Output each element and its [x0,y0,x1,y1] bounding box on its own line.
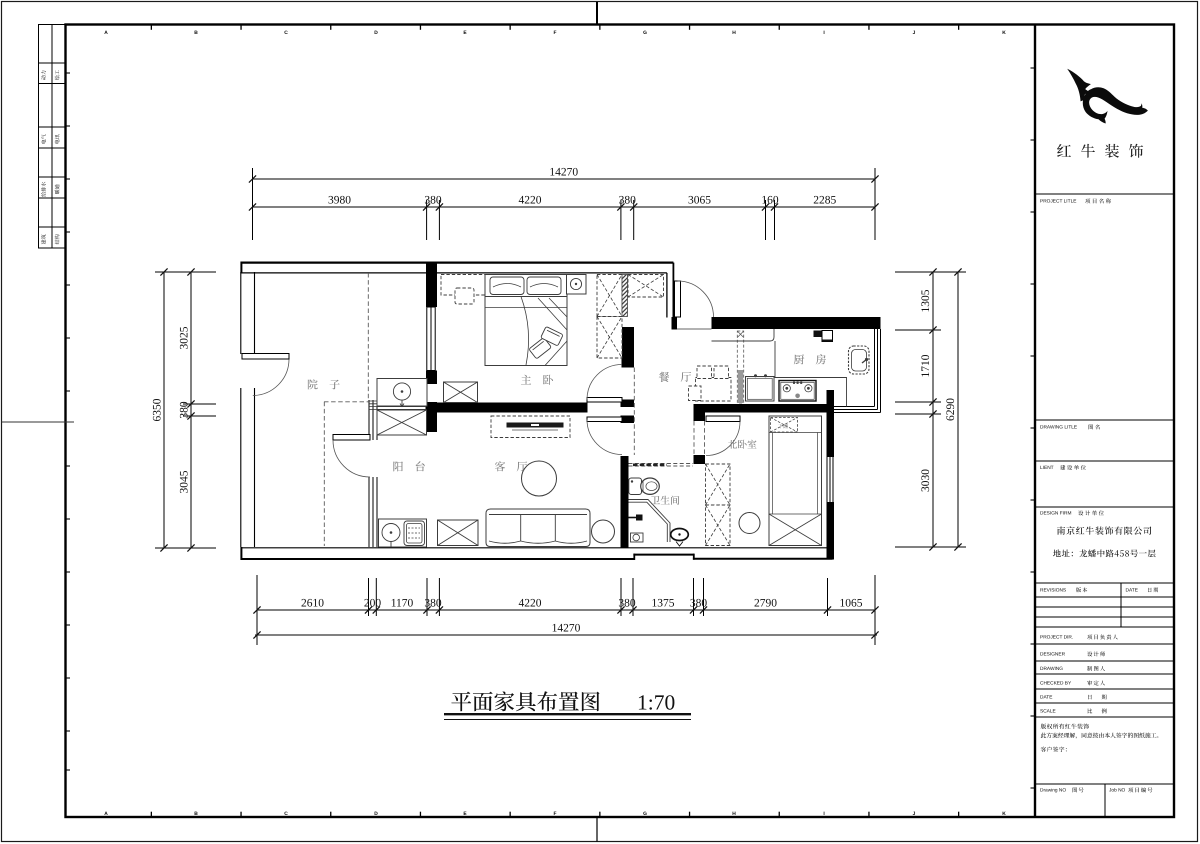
svg-text:2610: 2610 [301,598,324,610]
svg-text:380: 380 [179,401,191,419]
svg-text:2790: 2790 [754,598,777,610]
svg-text:6350: 6350 [152,398,164,421]
svg-text:380: 380 [424,598,442,610]
svg-text:1305: 1305 [920,289,932,312]
svg-text:B: B [194,811,198,817]
svg-text:DESIGNER: DESIGNER [1040,652,1066,658]
svg-text:3025: 3025 [179,326,191,349]
svg-text:380: 380 [618,598,636,610]
svg-text:3045: 3045 [179,470,191,493]
svg-text:2285: 2285 [813,195,836,207]
svg-text:380: 380 [424,195,442,207]
svg-text:F: F [554,811,557,817]
svg-text:DATE: DATE [1126,588,1138,594]
svg-text:380: 380 [690,598,708,610]
svg-text:C: C [284,811,288,817]
svg-text:1065: 1065 [840,598,863,610]
svg-text:H: H [732,811,736,817]
svg-text:REVISIONS: REVISIONS [1040,588,1066,594]
svg-text:CHECKED BY: CHECKED BY [1040,681,1072,687]
svg-text:14270: 14270 [552,623,581,635]
svg-text:A: A [104,30,108,36]
svg-text:DRAWING LITLE: DRAWING LITLE [1040,425,1077,431]
svg-text:G: G [643,811,647,817]
svg-text:3980: 3980 [328,195,351,207]
svg-text:160: 160 [761,195,779,207]
svg-text:D: D [374,811,378,817]
svg-text:F: F [554,30,557,36]
svg-text:H: H [732,30,736,36]
svg-text:A: A [104,811,108,817]
svg-text:D: D [374,30,378,36]
svg-text:Job NO: Job NO [1109,788,1126,794]
svg-text:4220: 4220 [519,195,542,207]
svg-text:PROJECT DIR.: PROJECT DIR. [1040,635,1073,641]
svg-text:G: G [643,30,647,36]
svg-text:200: 200 [364,598,382,610]
svg-text:Drawing NO: Drawing NO [1040,788,1066,794]
svg-text:K: K [1002,30,1006,36]
svg-text:1375: 1375 [652,598,675,610]
svg-text:380: 380 [619,195,637,207]
svg-text:DATE: DATE [1040,695,1052,701]
svg-text:3030: 3030 [920,469,932,492]
svg-text:DESIGN FIRM: DESIGN FIRM [1040,511,1071,517]
svg-text:DRAWING: DRAWING [1040,666,1063,672]
svg-text:4220: 4220 [519,598,542,610]
svg-text:K: K [1002,811,1006,817]
svg-text:J: J [913,30,916,36]
svg-text:SCALE: SCALE [1040,709,1056,715]
svg-text:C: C [284,30,288,36]
svg-text:J: J [913,811,916,817]
svg-text:1170: 1170 [391,598,414,610]
svg-text:1:70: 1:70 [637,691,675,715]
svg-text:LIENT: LIENT [1040,465,1054,471]
svg-text:PROJECT LITLE: PROJECT LITLE [1040,199,1076,205]
svg-text:14270: 14270 [549,167,578,179]
svg-text:1710: 1710 [920,354,932,377]
svg-text:3065: 3065 [688,195,711,207]
svg-text:B: B [194,30,198,36]
svg-text:6290: 6290 [945,398,957,421]
